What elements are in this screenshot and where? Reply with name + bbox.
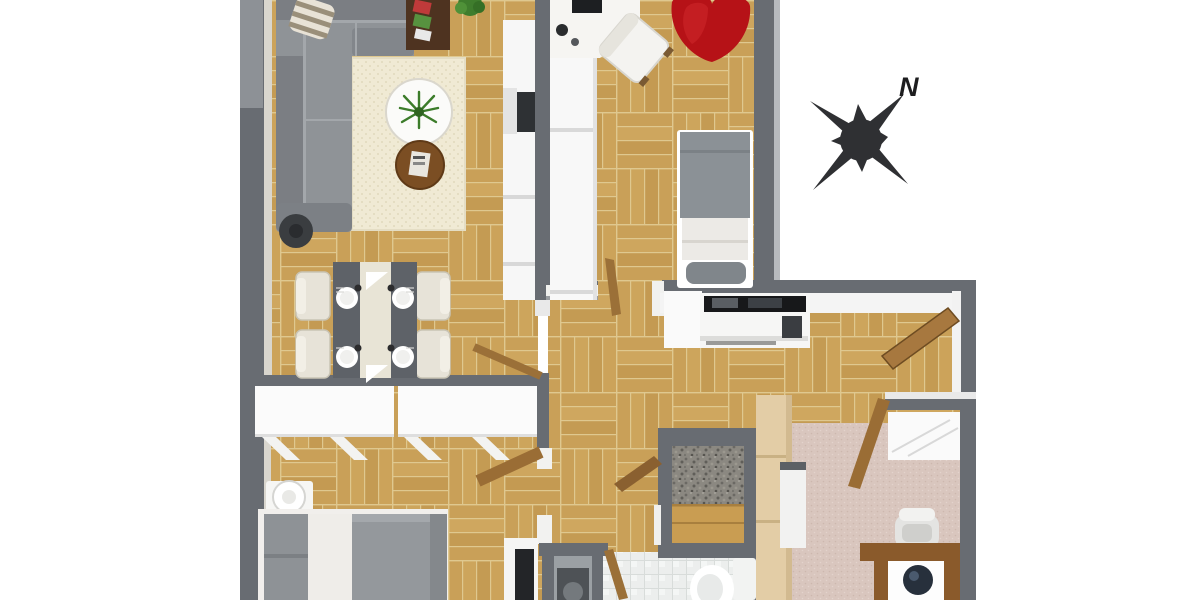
svg-text:N: N bbox=[899, 72, 919, 102]
